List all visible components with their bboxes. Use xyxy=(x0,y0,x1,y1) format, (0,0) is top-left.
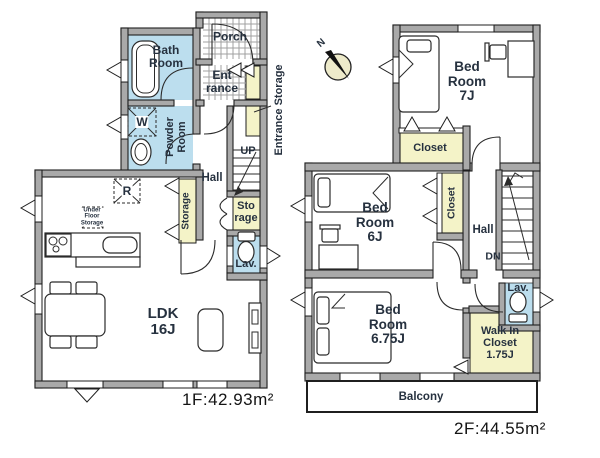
bed675-west-window xyxy=(305,288,312,316)
hall-ldk-door-arc xyxy=(181,240,215,274)
desk-7j xyxy=(508,41,534,77)
ldk-south-marker xyxy=(75,389,99,402)
sofa xyxy=(198,309,223,351)
lavatory1-window xyxy=(260,246,267,268)
closet-7j-door-marker xyxy=(439,117,455,131)
toilet2-bowl xyxy=(510,292,526,312)
up-label: UP xyxy=(240,146,255,158)
bed-675j-pillow xyxy=(317,328,329,355)
bed7-north-window xyxy=(458,25,494,32)
bath-window-marker xyxy=(107,62,121,78)
closet-6j-label: Closet xyxy=(446,187,457,219)
toilet1-tank xyxy=(238,232,255,241)
ldk-west-marker-upper xyxy=(21,200,35,216)
floorplan-canvas: Bath Room Porch Ent rance Entrance Stora… xyxy=(0,0,600,458)
bed-6j-pillow xyxy=(318,178,330,207)
powder-sink xyxy=(131,139,151,165)
stairs-2f-direction-line xyxy=(509,173,529,260)
balcony-label: Balcony xyxy=(399,391,444,403)
walk-in-closet-door-marker xyxy=(454,360,468,374)
closet-6j-door-track xyxy=(437,173,442,233)
bedroom-6j-label: Bed Room 6J xyxy=(356,201,394,245)
lavatory-1f-label: Lav. xyxy=(235,259,256,271)
ldk-south-window-mid xyxy=(163,381,193,388)
porch-label: Porch xyxy=(213,31,247,44)
dining-table xyxy=(45,294,105,336)
closet-6j-door-marker xyxy=(423,178,437,194)
closet-7j-label: Closet xyxy=(413,143,447,155)
dining-chair xyxy=(76,282,97,294)
dn-label: DN xyxy=(485,251,500,262)
entrance-storage-shelf-lower xyxy=(246,102,260,136)
ldk-west-marker-lower xyxy=(21,288,35,304)
walk-in-closet-label: Walk In Closet 1.75J xyxy=(481,326,519,362)
lavatory-2f-label: Lav. xyxy=(507,283,528,295)
toilet2-tank xyxy=(509,314,527,322)
closet-6j-door-marker xyxy=(423,208,437,224)
lavatory1-window-marker xyxy=(267,248,280,264)
floor1-area-label: 1F:42.93m² xyxy=(182,391,274,409)
ldk-west-window-upper xyxy=(35,196,42,222)
chair-6j xyxy=(322,229,338,242)
dining-chair xyxy=(50,336,71,348)
kitchen-peninsula xyxy=(76,257,140,267)
bed675-door-arc xyxy=(437,282,463,310)
dining-chair xyxy=(76,336,97,348)
bath-window xyxy=(121,60,128,82)
bed6-west-window xyxy=(305,196,312,222)
entrance-storage-label: Entrance Storage xyxy=(274,64,286,155)
storage-closet-label: Sto rage xyxy=(234,201,257,225)
bed-7j-pillow xyxy=(407,40,431,52)
washer-label: W xyxy=(135,116,148,128)
stairs-2f-arrowhead xyxy=(504,176,513,186)
hall-1f-label: Hall xyxy=(201,172,222,184)
ldk-south-window-left xyxy=(67,381,103,388)
entrance-label: Ent rance xyxy=(206,69,238,95)
lavatory2-window xyxy=(533,288,540,312)
bath-room-label: Bath Room xyxy=(149,44,183,70)
bedroom-675j-label: Bed Room 6.75J xyxy=(369,303,407,347)
lavatory1-door-slide xyxy=(227,246,233,266)
bed7-door-arc xyxy=(472,137,500,165)
bed6-west-marker xyxy=(291,198,305,214)
hall-2f-label: Hall xyxy=(472,224,493,236)
powder-room-label: Powder Room xyxy=(165,117,189,157)
bed-675j-pillow xyxy=(317,297,329,324)
ldk-label: LDK 16J xyxy=(148,306,179,338)
storage-strip-door-marker xyxy=(165,178,179,194)
storage-strip-label: Storage xyxy=(182,192,193,229)
floorplan-drawing xyxy=(0,0,600,458)
powder-window-marker xyxy=(107,117,121,133)
ldk-west-window-lower xyxy=(35,284,42,314)
refrigerator-label: R xyxy=(122,185,133,197)
chair-7j xyxy=(490,45,506,59)
balcony-slider-left xyxy=(340,373,380,381)
bedroom-7j-label: Bed Room 7J xyxy=(448,60,486,104)
stairs-2f xyxy=(502,173,533,264)
bed675-west-marker xyxy=(291,292,305,308)
closet-7j-door-marker xyxy=(404,117,420,131)
dining-chair xyxy=(50,282,71,294)
kitchen-sink xyxy=(103,237,137,253)
stairs-2f-treads xyxy=(502,176,533,264)
storage-strip-door-marker xyxy=(165,224,179,240)
bed7-west-marker xyxy=(379,59,393,75)
compass xyxy=(325,50,351,80)
lavatory2-window-marker xyxy=(540,292,553,308)
floor2-area-label: 2F:44.55m² xyxy=(454,420,546,438)
balcony-slider-right xyxy=(420,373,454,381)
ldk-south-window-right xyxy=(197,381,227,388)
storage-bifold-doors xyxy=(220,198,227,230)
stove xyxy=(46,234,71,256)
bed6-door-arc xyxy=(433,242,461,270)
under-floor-storage-label: Under Floor Storage xyxy=(80,208,104,227)
powder-window xyxy=(121,115,128,139)
desk-6j xyxy=(319,245,358,269)
chair-7j-back xyxy=(485,43,489,61)
